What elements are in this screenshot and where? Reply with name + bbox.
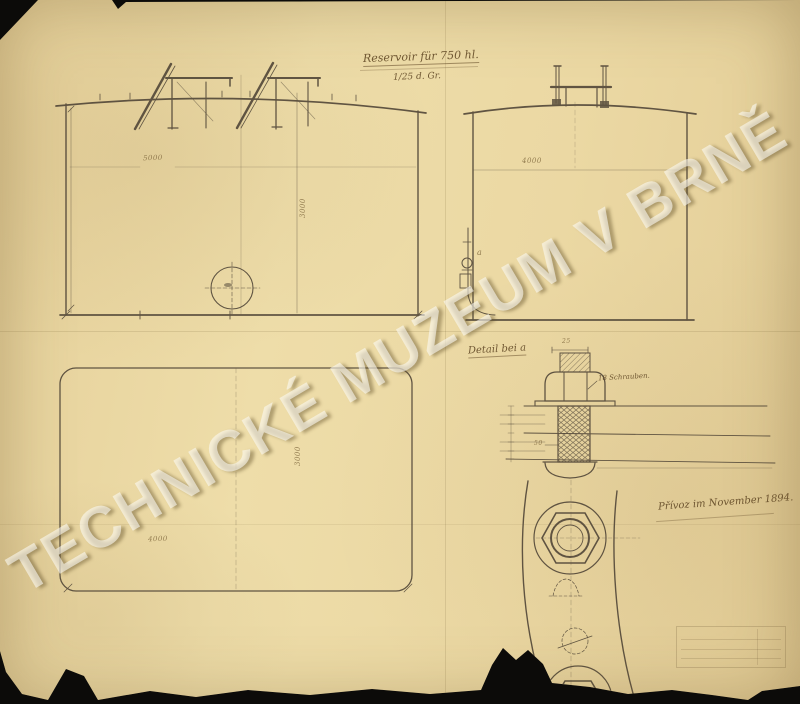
paper-sheet: Reservoir für 750 hl. 1/25 d. Gr. Detail… <box>0 0 800 704</box>
scanned-drawing-sheet: Reservoir für 750 hl. 1/25 d. Gr. Detail… <box>0 0 800 704</box>
paper-vignette <box>0 0 800 704</box>
